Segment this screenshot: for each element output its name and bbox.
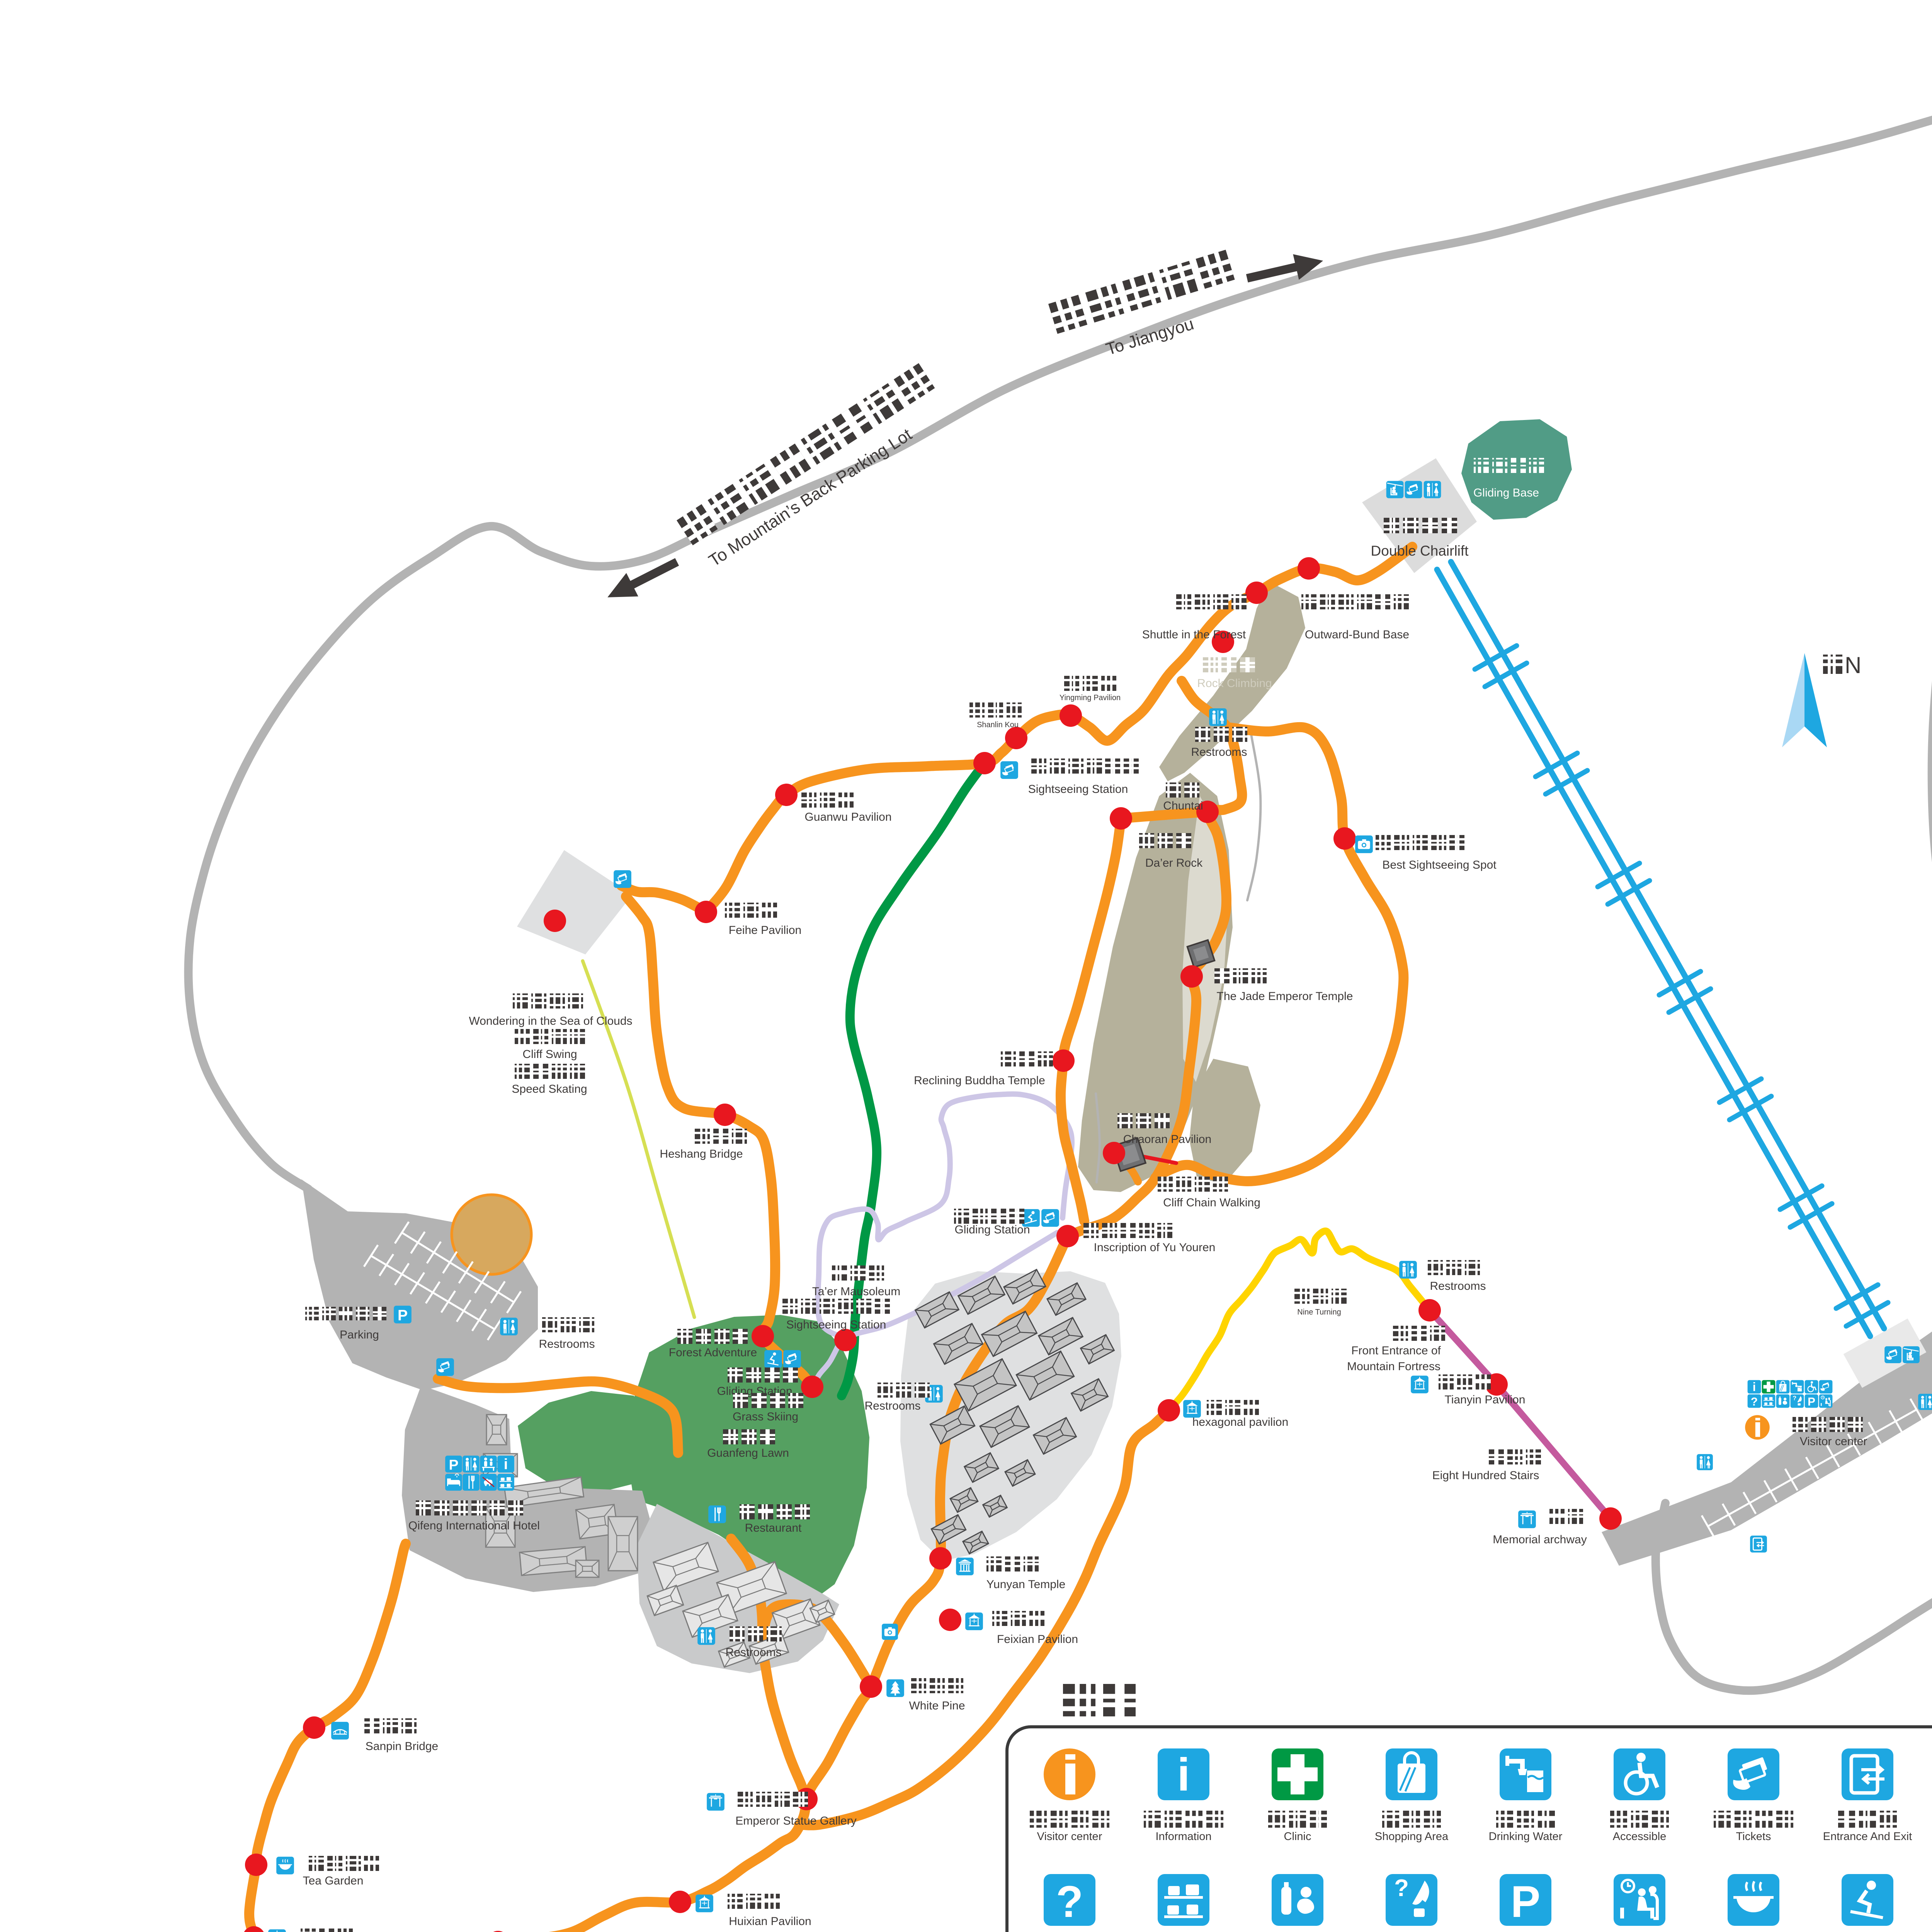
svg-text:Restrooms: Restrooms (864, 1400, 920, 1412)
svg-text:Inscription of Yu Youren: Inscription of Yu Youren (1094, 1241, 1216, 1254)
svg-text:Gliding Base: Gliding Base (1473, 486, 1539, 499)
svg-text:White Pine: White Pine (909, 1699, 965, 1712)
svg-text:Shanlin Kou: Shanlin Kou (977, 721, 1019, 729)
svg-text:Speed Skating: Speed Skating (512, 1083, 587, 1095)
svg-text:Eight Hundred Stairs: Eight Hundred Stairs (1432, 1469, 1539, 1482)
svg-text:Guanwu Pavilion: Guanwu Pavilion (804, 811, 891, 823)
svg-text:Drinking Water: Drinking Water (1489, 1830, 1563, 1843)
svg-text:Feixian Pavilion: Feixian Pavilion (997, 1633, 1078, 1646)
svg-text:Entrance And Exit: Entrance And Exit (1823, 1830, 1912, 1843)
svg-text:Guanfeng Lawn: Guanfeng Lawn (707, 1447, 789, 1459)
svg-text:Tea Garden: Tea Garden (303, 1874, 364, 1887)
svg-text:Sightseeing Station: Sightseeing Station (1028, 783, 1128, 796)
svg-text:The Jade Emperor Temple: The Jade Emperor Temple (1217, 990, 1353, 1003)
svg-text:Reclining Buddha Temple: Reclining Buddha Temple (914, 1074, 1045, 1087)
svg-text:Emperor Statue Gallery: Emperor Statue Gallery (735, 1815, 856, 1827)
svg-text:Tianyin Pavilion: Tianyin Pavilion (1445, 1393, 1526, 1406)
svg-text:Cliff Chain Walking: Cliff Chain Walking (1163, 1196, 1260, 1209)
svg-text:Tickets: Tickets (1736, 1830, 1771, 1843)
svg-text:Chaoran Pavilion: Chaoran Pavilion (1123, 1133, 1211, 1146)
svg-text:Nine Turning: Nine Turning (1297, 1308, 1341, 1316)
svg-text:N: N (1845, 652, 1861, 678)
svg-text:Information: Information (1155, 1830, 1211, 1843)
svg-text:Visitor center: Visitor center (1800, 1435, 1867, 1448)
svg-text:Mountain Fortress: Mountain Fortress (1347, 1360, 1440, 1373)
svg-text:Restrooms: Restrooms (539, 1338, 595, 1350)
svg-text:Grass Skiing: Grass Skiing (733, 1410, 798, 1423)
svg-text:Restrooms: Restrooms (1430, 1280, 1486, 1293)
svg-text:Best Sightseeing Spot: Best Sightseeing Spot (1382, 859, 1497, 871)
svg-text:Double Chairlift: Double Chairlift (1371, 543, 1469, 559)
svg-text:Clinic: Clinic (1284, 1830, 1311, 1843)
svg-text:Gliding Station: Gliding Station (954, 1223, 1030, 1236)
svg-text:Visitor center: Visitor center (1037, 1830, 1102, 1843)
svg-text:Da’er Rock: Da’er Rock (1145, 857, 1203, 869)
svg-text:Memorial archway: Memorial archway (1493, 1533, 1587, 1546)
svg-text:Heshang Bridge: Heshang Bridge (660, 1148, 743, 1160)
svg-text:Shopping Area: Shopping Area (1375, 1830, 1449, 1843)
svg-text:Wondering in the Sea of Clouds: Wondering in the Sea of Clouds (469, 1015, 632, 1027)
svg-text:Front Entrance of: Front Entrance of (1351, 1344, 1441, 1357)
svg-text:Feihe Pavilion: Feihe Pavilion (729, 924, 801, 937)
svg-text:Ta’er Mausoleum: Ta’er Mausoleum (812, 1285, 900, 1298)
svg-text:Rock Climbing: Rock Climbing (1197, 677, 1272, 690)
svg-text:Parking: Parking (340, 1328, 379, 1341)
svg-text:Forest Adventure: Forest Adventure (669, 1346, 757, 1359)
svg-text:Huixian Pavilion: Huixian Pavilion (729, 1915, 811, 1928)
svg-text:hexagonal pavilion: hexagonal pavilion (1192, 1416, 1289, 1429)
svg-text:Shuttle in the Forest: Shuttle in the Forest (1142, 628, 1246, 641)
svg-text:Cliff Swing: Cliff Swing (522, 1048, 577, 1061)
svg-text:Restaurant: Restaurant (745, 1522, 802, 1534)
svg-text:Sightseeing Station: Sightseeing Station (786, 1318, 886, 1331)
svg-text:Outward-Bund Base: Outward-Bund Base (1305, 628, 1409, 641)
svg-text:Accessible: Accessible (1613, 1830, 1667, 1843)
svg-text:Qifeng International Hotel: Qifeng International Hotel (408, 1519, 540, 1532)
svg-text:Sanpin Bridge: Sanpin Bridge (366, 1740, 438, 1753)
svg-text:Chuntai: Chuntai (1163, 799, 1203, 812)
svg-text:Restrooms: Restrooms (725, 1646, 781, 1659)
svg-text:Yunyan Temple: Yunyan Temple (986, 1578, 1066, 1591)
svg-text:Restrooms: Restrooms (1191, 746, 1247, 759)
svg-text:Yingming Pavilion: Yingming Pavilion (1060, 694, 1121, 702)
